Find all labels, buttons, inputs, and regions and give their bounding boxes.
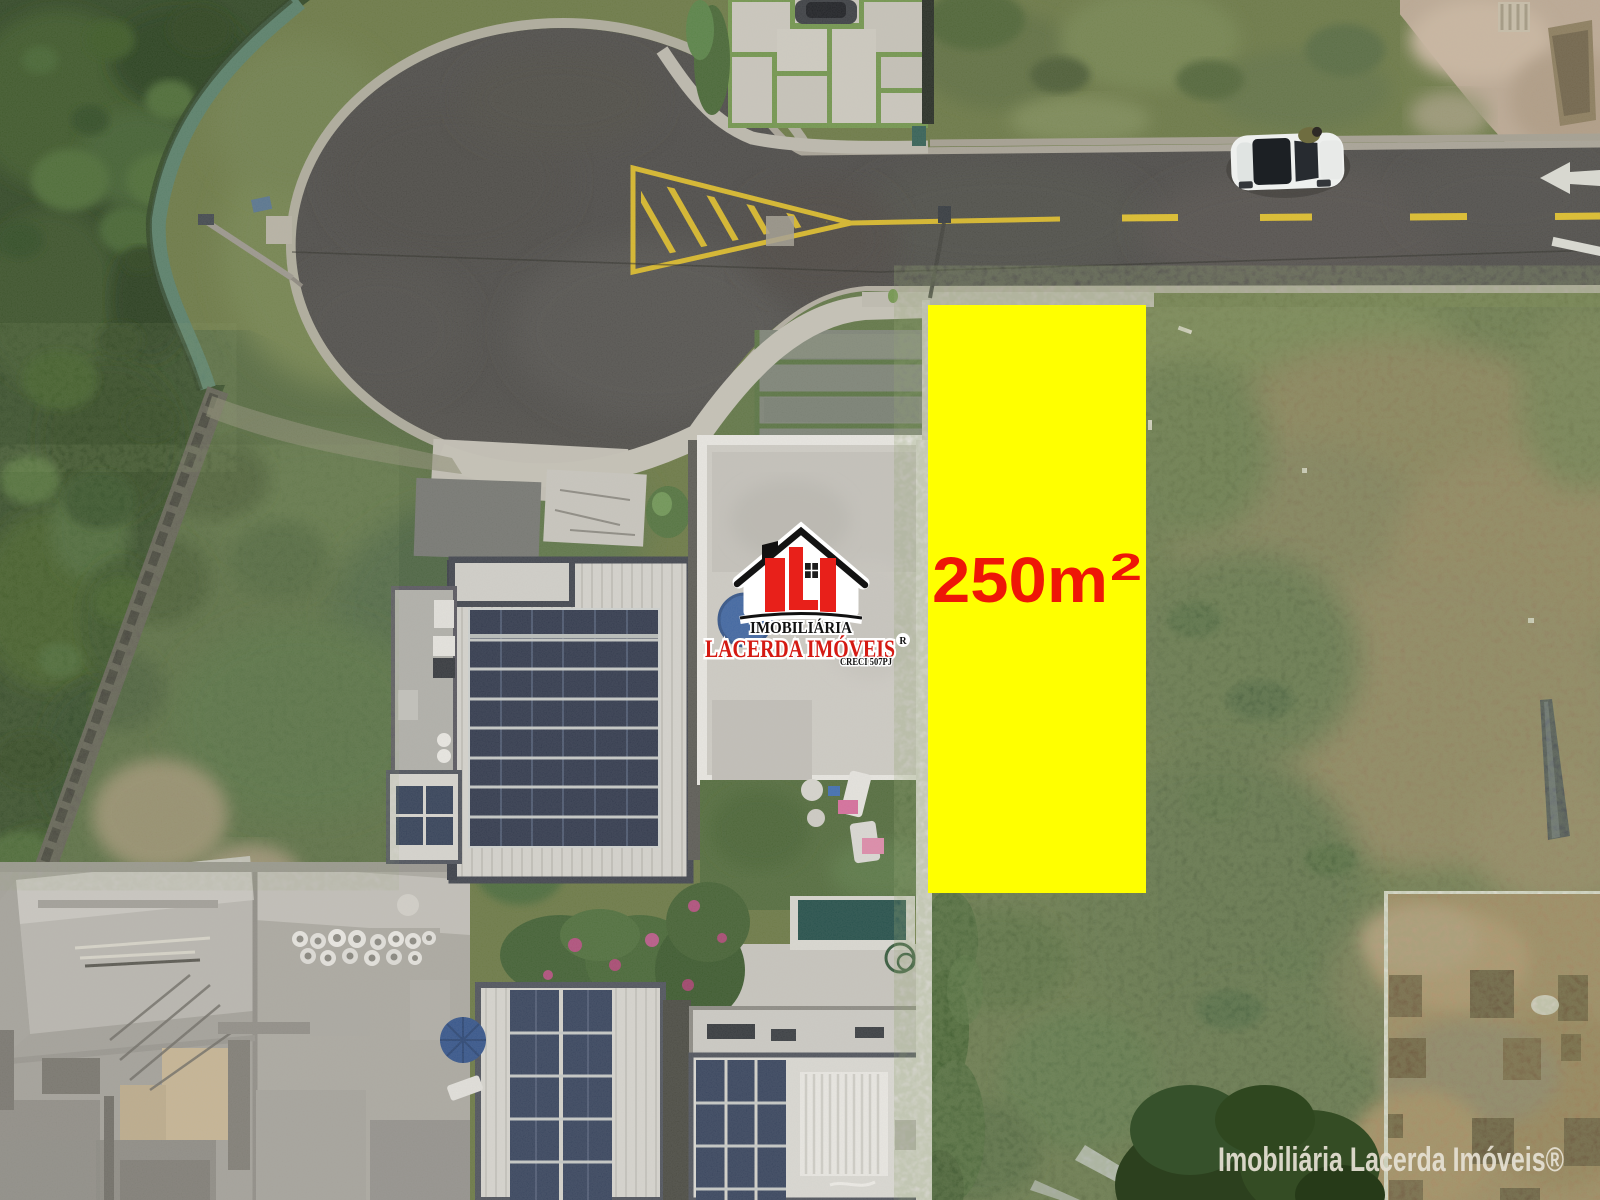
svg-text:250m: 250m	[932, 544, 1108, 616]
svg-text:2: 2	[1110, 547, 1142, 589]
svg-text:CRECI 507PJ: CRECI 507PJ	[840, 656, 892, 668]
svg-text:Imobiliária Lacerda Imóveis®: Imobiliária Lacerda Imóveis®	[1218, 1141, 1564, 1179]
svg-text:R: R	[899, 636, 907, 647]
svg-text:IMOBILIÁRIA: IMOBILIÁRIA	[750, 618, 853, 637]
